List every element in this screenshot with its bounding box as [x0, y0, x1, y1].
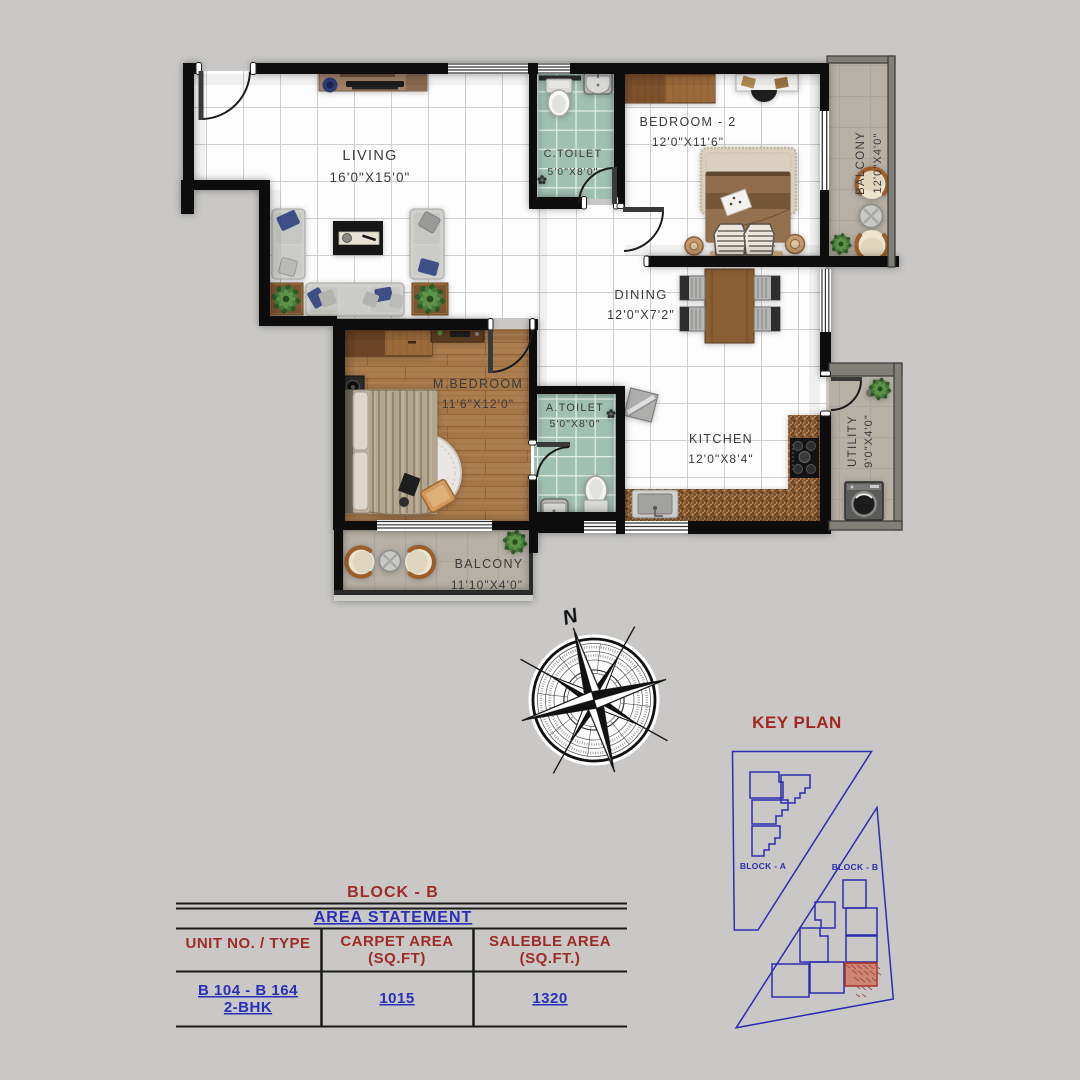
- svg-text:(SQ.FT.): (SQ.FT.): [520, 950, 581, 967]
- svg-text:DINING: DINING: [614, 287, 667, 302]
- svg-text:2-BHK: 2-BHK: [224, 999, 272, 1016]
- svg-text:BLOCK - A: BLOCK - A: [740, 861, 786, 871]
- svg-text:1320: 1320: [532, 990, 567, 1007]
- svg-text:11'6"X12'0": 11'6"X12'0": [442, 397, 514, 411]
- svg-text:C.TOILET: C.TOILET: [544, 148, 603, 160]
- svg-text:BEDROOM - 2: BEDROOM - 2: [640, 115, 737, 129]
- svg-text:(SQ.FT): (SQ.FT): [368, 950, 426, 967]
- svg-text:12'0"X7'2": 12'0"X7'2": [607, 308, 675, 322]
- svg-text:BLOCK - B: BLOCK - B: [347, 884, 439, 901]
- svg-text:A.TOILET: A.TOILET: [546, 402, 604, 414]
- svg-text:12'0"X8'4": 12'0"X8'4": [688, 452, 753, 466]
- svg-text:12'0"X4'0": 12'0"X4'0": [872, 133, 884, 194]
- svg-text:KEY PLAN: KEY PLAN: [752, 713, 842, 732]
- svg-text:UNIT NO. / TYPE: UNIT NO. / TYPE: [185, 935, 310, 952]
- svg-text:CARPET AREA: CARPET AREA: [340, 933, 453, 950]
- svg-text:BALCONY: BALCONY: [455, 557, 524, 571]
- svg-text:5'0"X8'0": 5'0"X8'0": [550, 419, 601, 430]
- svg-text:B 104 - B 164: B 104 - B 164: [198, 982, 298, 999]
- svg-text:12'0"X11'6": 12'0"X11'6": [652, 135, 724, 149]
- svg-text:LIVING: LIVING: [342, 148, 397, 164]
- svg-text:11'10"X4'0": 11'10"X4'0": [451, 578, 523, 592]
- svg-text:1015: 1015: [379, 990, 414, 1007]
- svg-text:16'0"X15'0": 16'0"X15'0": [330, 170, 411, 185]
- svg-text:5'0"X8'0": 5'0"X8'0": [548, 167, 599, 178]
- svg-text:M.BEDROOM: M.BEDROOM: [433, 377, 523, 391]
- svg-text:SALEBLE AREA: SALEBLE AREA: [489, 933, 611, 950]
- svg-text:UTILITY: UTILITY: [847, 415, 859, 467]
- svg-text:BALCONY: BALCONY: [855, 131, 867, 195]
- svg-text:AREA STATEMENT: AREA STATEMENT: [314, 909, 473, 926]
- svg-text:KITCHEN: KITCHEN: [689, 432, 753, 446]
- svg-text:9'0"X4'0": 9'0"X4'0": [863, 414, 875, 468]
- svg-text:BLOCK - B: BLOCK - B: [832, 862, 879, 872]
